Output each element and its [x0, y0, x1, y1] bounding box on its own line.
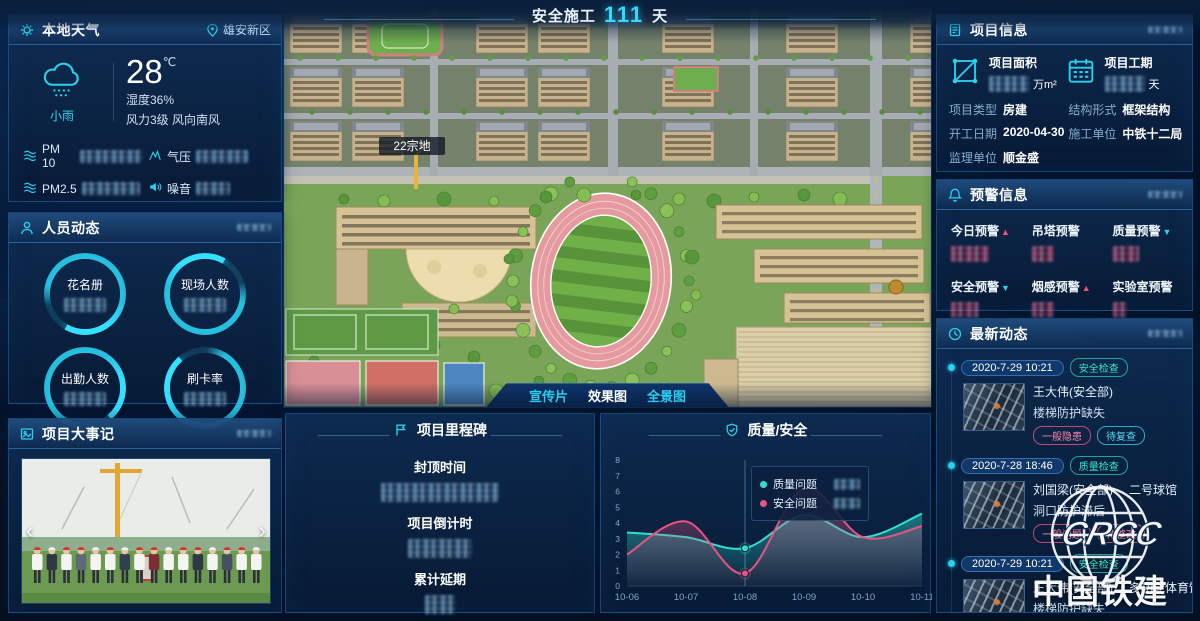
svg-text:10-06: 10-06: [615, 592, 639, 603]
scene-tab-效果图[interactable]: 效果图: [588, 386, 627, 405]
chart-tooltip: 质量问题安全问题: [751, 466, 869, 521]
masked-metric-value: [196, 182, 230, 195]
alert-item: 实验室预警: [1113, 278, 1178, 318]
svg-text:5: 5: [615, 502, 620, 512]
pressure-icon: [148, 148, 162, 165]
personnel-panel-header: 人员动态: [9, 213, 281, 243]
alert-items: 今日预警▲吊塔预警质量预警▼安全预警▼烟感预警▲实验室预警: [937, 210, 1192, 318]
trend-down-icon: ▼: [1001, 283, 1010, 293]
feed-entry-text: 王大伟(安全部)楼梯防护缺失一般隐患待复查: [1033, 383, 1145, 445]
feed-tags: 一般隐患待复查: [1033, 426, 1145, 445]
person-icon: [19, 220, 35, 236]
field-value: 2020-04-30: [1003, 125, 1064, 142]
tooltip-series-row: 质量问题: [760, 476, 860, 492]
personnel-gauge: 现场人数: [164, 253, 246, 335]
svg-text:7: 7: [615, 471, 620, 481]
milestone-label: 累计延期: [286, 569, 594, 588]
personnel-gauge: 刷卡率: [164, 347, 246, 429]
series-name: 质量问题: [773, 476, 817, 492]
stat-value-row: 万m²: [989, 76, 1057, 92]
field-value: 房建: [1003, 101, 1027, 118]
alerts-panel-title: 预警信息: [970, 185, 1028, 205]
alert-item: 吊塔预警: [1032, 222, 1105, 262]
project-stat: 项目面积万m²: [949, 54, 1065, 92]
project-field: 监理单位顺金盛: [949, 149, 1064, 166]
bell-icon: [947, 187, 963, 203]
header-decoration: [1148, 191, 1182, 198]
project-fields: 项目类型房建结构形式框架结构开工日期2020-04-30施工单位中铁十二局监理单…: [937, 94, 1192, 166]
header-wing-left: [315, 11, 514, 20]
trend-down-icon: ▼: [1163, 227, 1172, 237]
calendar-icon: [1065, 55, 1097, 92]
temperature-value: 28: [126, 53, 163, 90]
feed-entry[interactable]: 2020-7-28 18:46质量检查刘国梁(安全部)二号球馆洞口防护滞后一般问…: [949, 456, 1182, 543]
stat-text: 项目工期天: [1105, 54, 1160, 92]
alert-label: 安全预警▼: [951, 280, 1010, 294]
weather-condition: 小雨: [23, 107, 101, 124]
masked-gauge-value: [184, 392, 226, 406]
air-metric-label: 噪音: [167, 180, 191, 197]
gauge-inner: 花名册: [44, 253, 126, 335]
photo-icon: [19, 426, 35, 442]
field-value: 框架结构: [1122, 101, 1170, 118]
tooltip-series-row: 安全问题: [760, 495, 860, 511]
milestone-panel-header: 项目里程碑: [286, 414, 594, 446]
header-wing-right: [686, 11, 885, 20]
series-dot: [760, 500, 767, 507]
masked-milestone-value: [381, 483, 499, 502]
svg-text:22宗地: 22宗地: [393, 138, 430, 153]
svg-text:8: 8: [615, 455, 620, 465]
alerts-panel-header: 预警信息: [937, 180, 1192, 210]
project-info-panel: 项目信息 项目面积万m²项目工期天 项目类型房建结构形式框架结构开工日期2020…: [936, 14, 1193, 172]
site-3d-render[interactable]: 22宗地 宣传片效果图全景图: [283, 8, 932, 408]
personnel-gauge: 出勤人数: [44, 347, 126, 429]
feed-entry-text: 刘国梁(安全部)二号球馆洞口防护滞后一般问题待整改: [1033, 481, 1177, 543]
svg-text:10-11: 10-11: [910, 592, 932, 603]
feed-person-row: 刘国梁(安全部)二号球馆: [1033, 481, 1177, 498]
milestone-panel: 项目里程碑 封顶时间项目倒计时累计延期: [285, 413, 595, 613]
stat-unit: 天: [1149, 76, 1160, 92]
trend-up-icon: ▲: [1082, 283, 1091, 293]
air-metric: PM2.5: [23, 180, 142, 197]
masked-metric-value: [80, 150, 142, 163]
shield-check-icon: [724, 422, 740, 438]
weather-panel: 本地天气 雄安新区 小雨 28℃ 湿度36% 风力3级 风向南风 PM 10气压…: [8, 14, 282, 202]
field-label: 开工日期: [949, 125, 997, 142]
feed-photo-thumbnail: [963, 481, 1025, 529]
series-dot: [760, 481, 767, 488]
masked-alert-count: [951, 302, 979, 318]
feed-entry-head: 2020-7-29 10:21安全检查: [949, 358, 1182, 377]
svg-text:0: 0: [615, 581, 620, 591]
feed-panel-title: 最新动态: [970, 324, 1028, 344]
stat-label: 项目面积: [989, 54, 1057, 71]
milestone-label: 封顶时间: [286, 457, 594, 476]
masked-series-value: [834, 498, 860, 509]
feed-entry-body: 刘国梁(安全部)二号球馆洞口防护滞后一般问题待整改: [963, 481, 1182, 543]
chart-panel-header: 质量/安全: [601, 414, 930, 446]
svg-text:4: 4: [615, 518, 620, 528]
area-icon: [949, 55, 981, 92]
feed-issue: 楼梯防护缺失: [1033, 600, 1182, 613]
feed-entry-head: 2020-7-28 18:46质量检查: [949, 456, 1182, 475]
svg-text:3: 3: [615, 534, 620, 544]
alert-label: 烟感预警▲: [1032, 280, 1091, 294]
project-field: 开工日期2020-04-30: [949, 125, 1064, 142]
masked-stat-value: [1105, 76, 1145, 92]
air-metric: 噪音: [148, 180, 267, 197]
project-field: 结构形式框架结构: [1068, 101, 1182, 118]
events-photo-carousel: ‹ ›: [21, 458, 271, 604]
events-panel: 项目大事记 ‹ ›: [8, 418, 282, 613]
timeline-dot: [948, 364, 955, 371]
feed-photo-thumbnail: [963, 383, 1025, 431]
feed-entry[interactable]: 2020-7-29 10:21安全检查王大伟(安全部)楼梯防护缺失一般隐患待复查: [949, 358, 1182, 445]
stat-label: 项目工期: [1105, 54, 1160, 71]
feed-panel: 最新动态 2020-7-29 10:21安全检查王大伟(安全部)楼梯防护缺失一般…: [936, 318, 1193, 613]
gauge-inner: 出勤人数: [44, 347, 126, 429]
field-value: 中铁十二局: [1122, 125, 1182, 142]
header-wing: [810, 425, 892, 436]
gauge-label: 花名册: [67, 276, 103, 293]
feed-person-row: 王大伟(安全部): [1033, 383, 1145, 400]
divider: [113, 63, 114, 121]
stat-value-row: 天: [1105, 76, 1160, 92]
masked-gauge-value: [64, 392, 106, 406]
header-decoration: [237, 430, 271, 437]
feed-entry-body: 王大伟(安全部)多功能体育馆楼梯防护缺失一般隐患待复查: [963, 579, 1182, 613]
scene-tab-宣传片[interactable]: 宣传片: [529, 386, 568, 405]
feed-tags: 一般问题待整改: [1033, 524, 1177, 543]
events-panel-title: 项目大事记: [42, 424, 115, 444]
air-metrics: PM 10气压PM2.5噪音: [9, 134, 281, 197]
safe-days-counter: 111: [604, 2, 644, 28]
gauge-inner: 刷卡率: [164, 347, 246, 429]
feed-person-row: 王大伟(安全部)多功能体育馆: [1033, 579, 1182, 596]
gauge-label: 现场人数: [181, 276, 229, 293]
air-metric-label: 气压: [167, 148, 191, 165]
stat-unit: 万m²: [1033, 76, 1057, 92]
svg-text:2: 2: [615, 550, 620, 560]
wind: 风力3级 风向南风: [126, 111, 220, 128]
temperature-unit: ℃: [163, 55, 176, 69]
alert-item: 质量预警▼: [1113, 222, 1178, 262]
field-value: 顺金盛: [1003, 149, 1039, 166]
feed-category-badge: 质量检查: [1070, 456, 1128, 475]
masked-metric-value: [82, 182, 140, 195]
personnel-panel-title: 人员动态: [42, 218, 100, 238]
svg-text:10-10: 10-10: [851, 592, 875, 603]
chart-panel-title: 质量/安全: [748, 420, 808, 440]
svg-text:10-08: 10-08: [733, 592, 757, 603]
feed-entry[interactable]: 2020-7-29 10:21安全检查王大伟(安全部)多功能体育馆楼梯防护缺失一…: [949, 554, 1182, 613]
carousel-prev-button[interactable]: ‹: [26, 520, 33, 542]
feed-time: 2020-7-29 10:21: [961, 556, 1064, 572]
masked-alert-count: [1032, 302, 1054, 318]
alert-item: 安全预警▼: [951, 278, 1024, 318]
feed-panel-header: 最新动态: [937, 319, 1192, 349]
feed-entry-text: 王大伟(安全部)多功能体育馆楼梯防护缺失一般隐患待复查: [1033, 579, 1182, 613]
masked-metric-value: [196, 150, 248, 163]
masked-milestone-value: [425, 595, 455, 614]
project-field: 项目类型房建: [949, 101, 1064, 118]
svg-text:10-09: 10-09: [792, 592, 816, 603]
masked-series-value: [834, 479, 860, 490]
gauge-label: 出勤人数: [61, 370, 109, 387]
feed-location: 二号球馆: [1129, 481, 1177, 498]
flag-icon: [393, 422, 409, 438]
field-label: 施工单位: [1068, 125, 1116, 142]
timeline-dot: [948, 560, 955, 567]
feed-entry-head: 2020-7-29 10:21安全检查: [949, 554, 1182, 573]
air-metric-label: PM2.5: [42, 182, 77, 196]
masked-alert-count: [951, 246, 989, 262]
air-metric: 气压: [148, 142, 267, 170]
alert-label: 今日预警▲: [951, 224, 1010, 238]
feed-list: 2020-7-29 10:21安全检查王大伟(安全部)楼梯防护缺失一般隐患待复查…: [937, 349, 1192, 613]
feed-tag-一般隐患: 一般隐患: [1033, 426, 1091, 445]
svg-text:10-07: 10-07: [674, 592, 698, 603]
milestone-item: 累计延期: [286, 569, 594, 614]
personnel-gauge: 花名册: [44, 253, 126, 335]
dust-icon: [23, 148, 37, 165]
aerial-render-graphic: 22宗地: [284, 9, 932, 408]
field-label: 结构形式: [1068, 101, 1116, 118]
gauge-inner: 现场人数: [164, 253, 246, 335]
air-metric: PM 10: [23, 142, 142, 170]
timeline-dot: [948, 462, 955, 469]
alert-label: 吊塔预警: [1032, 224, 1080, 238]
svg-text:1: 1: [615, 565, 620, 575]
header-wing: [639, 425, 721, 436]
scene-tab-全景图[interactable]: 全景图: [647, 386, 686, 405]
air-metric-label: PM 10: [42, 142, 75, 170]
top-header: 安全施工 111 天: [0, 0, 1200, 30]
feed-category-badge: 安全检查: [1070, 358, 1128, 377]
feed-issue: 楼梯防护缺失: [1033, 404, 1145, 421]
alert-label: 质量预警▼: [1113, 224, 1172, 238]
feed-person: 王大伟(安全部): [1033, 579, 1113, 596]
series-name: 安全问题: [773, 495, 817, 511]
header-wing: [490, 425, 572, 436]
group-photo: [22, 459, 271, 604]
personnel-panel: 人员动态 花名册现场人数出勤人数刷卡率: [8, 212, 282, 404]
weather-current: 小雨 28℃ 湿度36% 风力3级 风向南风: [9, 45, 281, 134]
personnel-gauges: 花名册现场人数出勤人数刷卡率: [9, 243, 281, 429]
alerts-panel: 预警信息 今日预警▲吊塔预警质量预警▼安全预警▼烟感预警▲实验室预警: [936, 179, 1193, 311]
milestone-items: 封顶时间项目倒计时累计延期: [286, 457, 594, 614]
masked-alert-count: [1113, 246, 1139, 262]
header-decoration: [1148, 330, 1182, 337]
milestone-panel-title: 项目里程碑: [417, 420, 487, 440]
alert-item: 烟感预警▲: [1032, 278, 1105, 318]
clock-icon: [947, 326, 963, 342]
feed-location: 多功能体育馆: [1129, 579, 1193, 596]
field-label: 监理单位: [949, 149, 997, 166]
header-decoration: [237, 224, 271, 231]
header-title-suffix: 天: [652, 5, 668, 26]
alert-item: 今日预警▲: [951, 222, 1024, 262]
quality-safety-panel: 质量/安全 01234567810-0610-0710-0810-0910-10…: [600, 413, 931, 613]
alert-label: 实验室预警: [1113, 280, 1173, 294]
feed-tag-待整改: 待整改: [1097, 524, 1145, 543]
masked-stat-value: [989, 76, 1029, 92]
feed-time: 2020-7-29 10:21: [961, 360, 1064, 376]
feed-entry-body: 王大伟(安全部)楼梯防护缺失一般隐患待复查: [963, 383, 1182, 445]
scene-view-tabs: 宣传片效果图全景图: [487, 383, 729, 407]
stat-text: 项目面积万m²: [989, 54, 1057, 92]
masked-alert-count: [1032, 246, 1054, 262]
feed-tag-待复查: 待复查: [1097, 426, 1145, 445]
feed-tag-一般问题: 一般问题: [1033, 524, 1091, 543]
noise-icon: [148, 180, 162, 197]
trend-up-icon: ▲: [1001, 227, 1010, 237]
milestone-label: 项目倒计时: [286, 513, 594, 532]
field-label: 项目类型: [949, 101, 997, 118]
masked-gauge-value: [184, 298, 226, 312]
header-title: 安全施工: [532, 5, 596, 26]
feed-person: 刘国梁(安全部): [1033, 481, 1113, 498]
masked-gauge-value: [64, 298, 106, 312]
events-panel-header: 项目大事记: [9, 419, 281, 449]
quality-safety-chart: 01234567810-0610-0710-0810-0910-1010-11 …: [601, 452, 930, 613]
humidity: 湿度36%: [126, 91, 220, 108]
masked-alert-count: [1113, 302, 1127, 318]
feed-category-badge: 安全检查: [1070, 554, 1128, 573]
project-stat: 项目工期天: [1065, 54, 1181, 92]
rain-cloud-icon: [39, 60, 85, 100]
feed-issue: 洞口防护滞后: [1033, 502, 1177, 519]
gauge-label: 刷卡率: [187, 370, 223, 387]
masked-milestone-value: [408, 539, 472, 558]
feed-photo-thumbnail: [963, 579, 1025, 613]
dust-icon: [23, 180, 37, 197]
milestone-item: 封顶时间: [286, 457, 594, 502]
feed-person: 王大伟(安全部): [1033, 383, 1113, 400]
milestone-item: 项目倒计时: [286, 513, 594, 558]
carousel-next-button[interactable]: ›: [259, 520, 266, 542]
svg-text:6: 6: [615, 487, 620, 497]
feed-time: 2020-7-28 18:46: [961, 458, 1064, 474]
project-field: 施工单位中铁十二局: [1068, 125, 1182, 142]
project-stats: 项目面积万m²项目工期天: [937, 45, 1192, 94]
header-wing: [308, 425, 390, 436]
dashboard: 安全施工 111 天 22宗地 宣传片效果图全景图 本地天气 雄安新区 小雨: [0, 0, 1200, 621]
